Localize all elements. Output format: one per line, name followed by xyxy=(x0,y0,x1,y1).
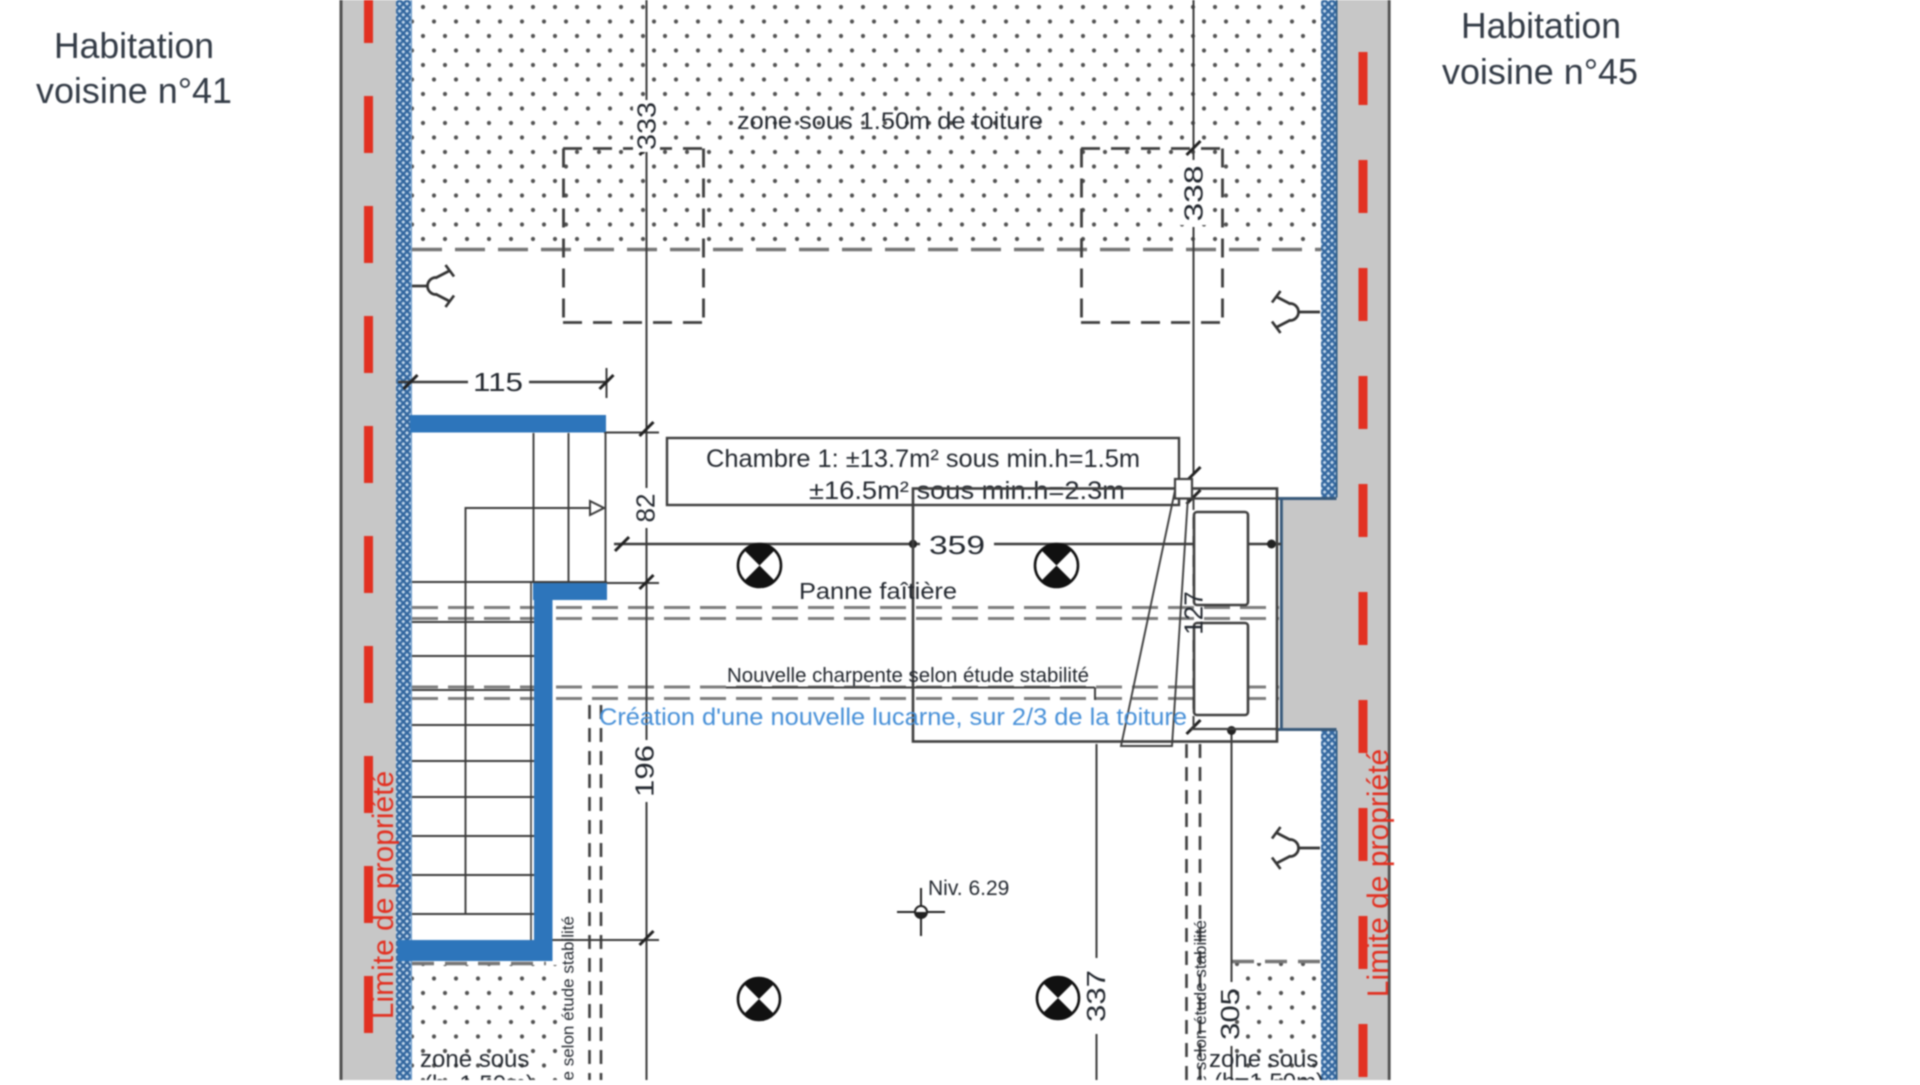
svg-text:Rehausse selon étude stabilité: Rehausse selon étude stabilité xyxy=(559,916,578,1080)
svg-text:Habitation: Habitation xyxy=(1461,5,1621,46)
svg-text:voisine n°45: voisine n°45 xyxy=(1442,51,1638,92)
svg-text:(h=1,50m): (h=1,50m) xyxy=(1214,1069,1324,1080)
svg-text:Rehausse selon étude stabilité: Rehausse selon étude stabilité xyxy=(1191,920,1210,1080)
svg-text:305: 305 xyxy=(1215,988,1245,1040)
svg-text:338: 338 xyxy=(1179,166,1209,222)
svg-text:Nouvelle charpente selon étude: Nouvelle charpente selon étude stabilité xyxy=(727,665,1089,687)
svg-text:82: 82 xyxy=(631,494,661,523)
svg-text:(h=1,50m): (h=1,50m) xyxy=(424,1071,534,1080)
svg-text:337: 337 xyxy=(1081,970,1111,1022)
svg-text:zone sous 1.50m de toiture: zone sous 1.50m de toiture xyxy=(737,108,1043,135)
svg-text:Panne faîtière: Panne faîtière xyxy=(799,578,957,604)
svg-text:Habitation: Habitation xyxy=(54,25,214,66)
svg-text:Chambre 1: ±13.7m² sous min.h=: Chambre 1: ±13.7m² sous min.h=1.5m xyxy=(706,445,1140,473)
svg-text:196: 196 xyxy=(630,745,660,797)
svg-text:zone sous: zone sous xyxy=(420,1046,529,1073)
svg-text:359: 359 xyxy=(929,530,985,560)
svg-text:Niv. 6.29: Niv. 6.29 xyxy=(928,877,1009,900)
svg-text:Limite de propriété: Limite de propriété xyxy=(367,771,400,1019)
svg-text:127: 127 xyxy=(1179,591,1209,634)
svg-text:voisine n°41: voisine n°41 xyxy=(36,70,232,111)
svg-text:Limite de propriété: Limite de propriété xyxy=(1362,749,1395,997)
svg-text:Création d'une nouvelle lucarn: Création d'une nouvelle lucarne, sur 2/3… xyxy=(599,704,1187,731)
svg-text:333: 333 xyxy=(632,102,662,150)
svg-text:115: 115 xyxy=(473,367,523,397)
svg-text:±16.5m² sous min.h=2.3m: ±16.5m² sous min.h=2.3m xyxy=(809,477,1125,505)
